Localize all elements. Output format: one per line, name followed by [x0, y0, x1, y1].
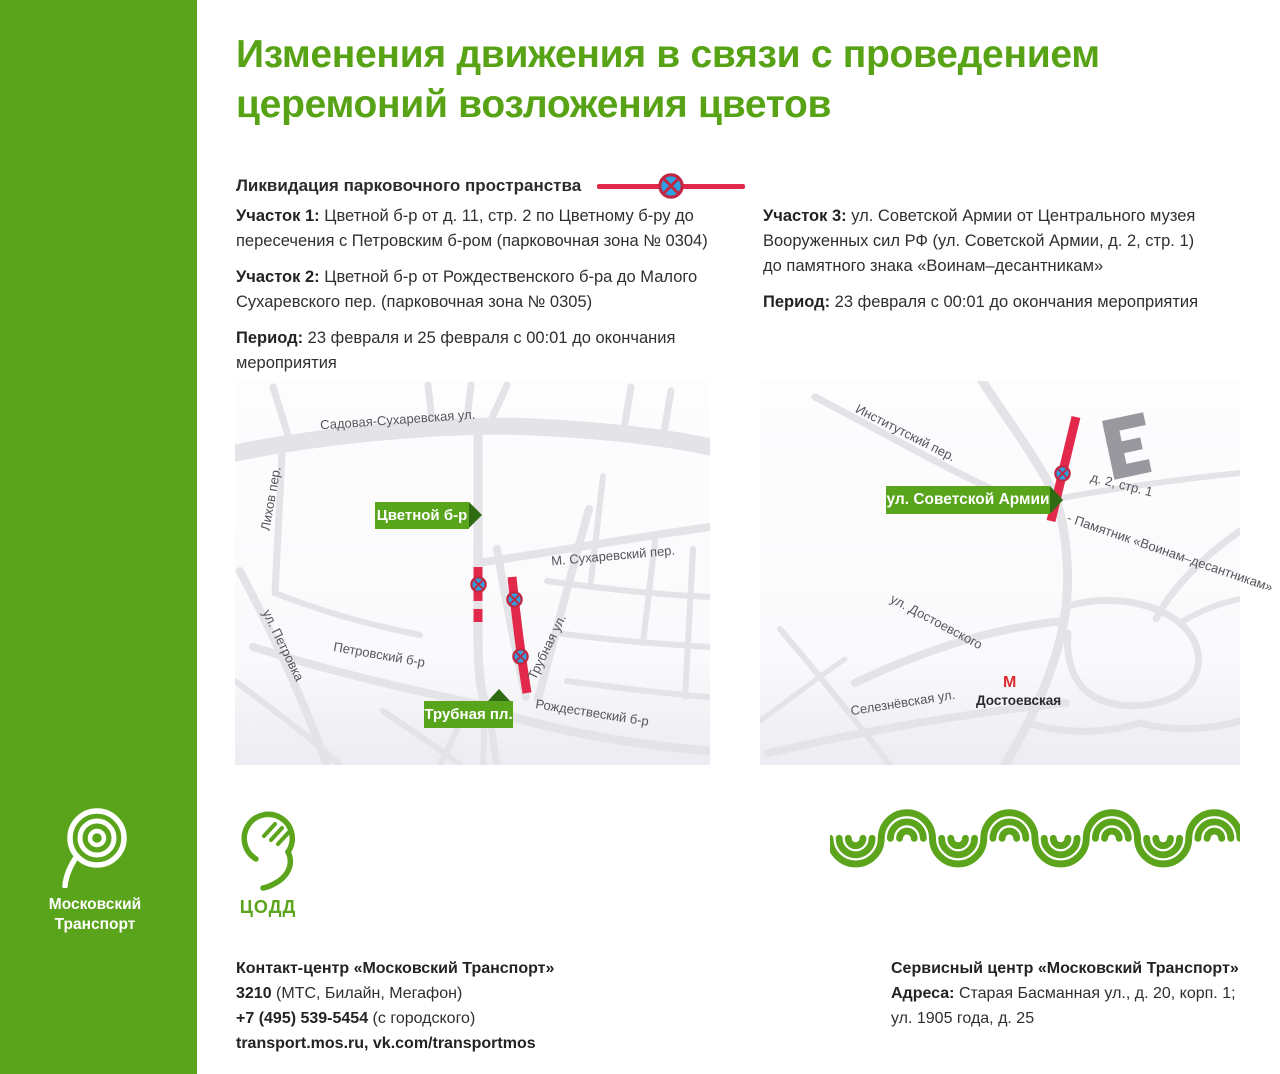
- phone-city-note: (с городского): [368, 1010, 475, 1027]
- section-1-label: Участок 1:: [236, 207, 320, 225]
- right-text-column: Участок 3: ул. Советской Армии от Центра…: [763, 204, 1203, 326]
- map-tag-arrow-right-icon: [469, 502, 482, 528]
- moscow-transport-icon: [49, 804, 141, 888]
- period-2-label: Период:: [763, 293, 830, 311]
- title-line-1: Изменения движения в связи с проведением: [236, 30, 1246, 80]
- address-text: Старая Басманная ул., д. 20, корп. 1;: [955, 985, 1236, 1002]
- contact-web-links: transport.mos.ru, vk.com/transportmos: [236, 1035, 536, 1052]
- codd-icon: [226, 802, 310, 892]
- metro-icon: М: [1003, 674, 1016, 692]
- contact-phone-city: +7 (495) 539-5454 (с городского): [236, 1006, 716, 1031]
- map-sovetskoy-armii: Институтский пер. ул. Достоевского Селез…: [760, 381, 1240, 765]
- no-stopping-icon: [470, 576, 487, 593]
- section-2-label: Участок 2:: [236, 268, 320, 286]
- codd-logo-text: ЦОДД: [226, 897, 310, 918]
- period-1-label: Период:: [236, 329, 303, 347]
- legend-line: [597, 184, 745, 189]
- period-1: Период: 23 февраля и 25 февраля с 00:01 …: [236, 326, 714, 376]
- section-3: Участок 3: ул. Советской Армии от Центра…: [763, 204, 1203, 279]
- metro-station-label: Достоевская: [976, 693, 1061, 708]
- section-1: Участок 1: Цветной б-р от д. 11, стр. 2 …: [236, 204, 714, 254]
- map-tag-trubnaya: Трубная пл.: [424, 701, 513, 728]
- wave-pattern-decoration: [830, 798, 1240, 886]
- period-2: Период: 23 февраля с 00:01 до окончания …: [763, 290, 1203, 315]
- map-tag-tsvetnoy: Цветной б-р: [375, 502, 469, 529]
- left-text-column: Участок 1: Цветной б-р от д. 11, стр. 2 …: [236, 204, 714, 387]
- map-tag-sovetskoy-armii: ул. Советской Армии: [886, 486, 1050, 514]
- poster: Изменения движения в связи с проведением…: [0, 0, 1280, 1074]
- page-title: Изменения движения в связи с проведением…: [236, 30, 1246, 130]
- map-tsvetnoy-boulevard: Садовая-Сухаревская ул. Лихов пер. М. Су…: [235, 381, 710, 765]
- address-label: Адреса:: [891, 985, 955, 1002]
- period-2-text: 23 февраля с 00:01 до окончания мероприя…: [830, 293, 1198, 311]
- no-stopping-icon: [506, 591, 523, 608]
- no-stopping-icon: [1054, 465, 1071, 482]
- title-line-2: церемоний возложения цветов: [236, 80, 1246, 130]
- contact-phone-short: 3210 (МТС, Билайн, Мегафон): [236, 981, 716, 1006]
- map-tag-arrow-up-icon: [488, 689, 510, 701]
- phone-short-number: 3210: [236, 985, 272, 1002]
- contact-center-title: Контакт-центр «Московский Транспорт»: [236, 960, 554, 977]
- legend-label: Ликвидация парковочного пространства: [236, 176, 581, 196]
- service-center-block: Сервисный центр «Московский Транспорт» А…: [891, 956, 1251, 1031]
- no-stopping-icon: [658, 173, 684, 199]
- moscow-transport-logo: Московский Транспорт: [47, 804, 143, 935]
- section-3-label: Участок 3:: [763, 207, 847, 225]
- phone-city-number: +7 (495) 539-5454: [236, 1010, 368, 1027]
- service-center-address: Адреса: Старая Басманная ул., д. 20, кор…: [891, 981, 1251, 1006]
- phone-short-operators: (МТС, Билайн, Мегафон): [272, 985, 463, 1002]
- no-stopping-icon: [512, 648, 529, 665]
- service-center-address-2: ул. 1905 года, д. 25: [891, 1006, 1251, 1031]
- contact-center-block: Контакт-центр «Московский Транспорт» 321…: [236, 956, 716, 1056]
- mt-logo-text-1: Московский: [47, 895, 143, 915]
- section-2: Участок 2: Цветной б-р от Рождественског…: [236, 265, 714, 315]
- map-tag-arrow-right-icon: [1050, 486, 1063, 514]
- service-center-title: Сервисный центр «Московский Транспорт»: [891, 960, 1239, 977]
- mt-logo-text-2: Транспорт: [47, 915, 143, 935]
- museum-building: [1102, 412, 1156, 479]
- codd-logo: ЦОДД: [226, 802, 310, 918]
- legend: Ликвидация парковочного пространства: [236, 176, 745, 196]
